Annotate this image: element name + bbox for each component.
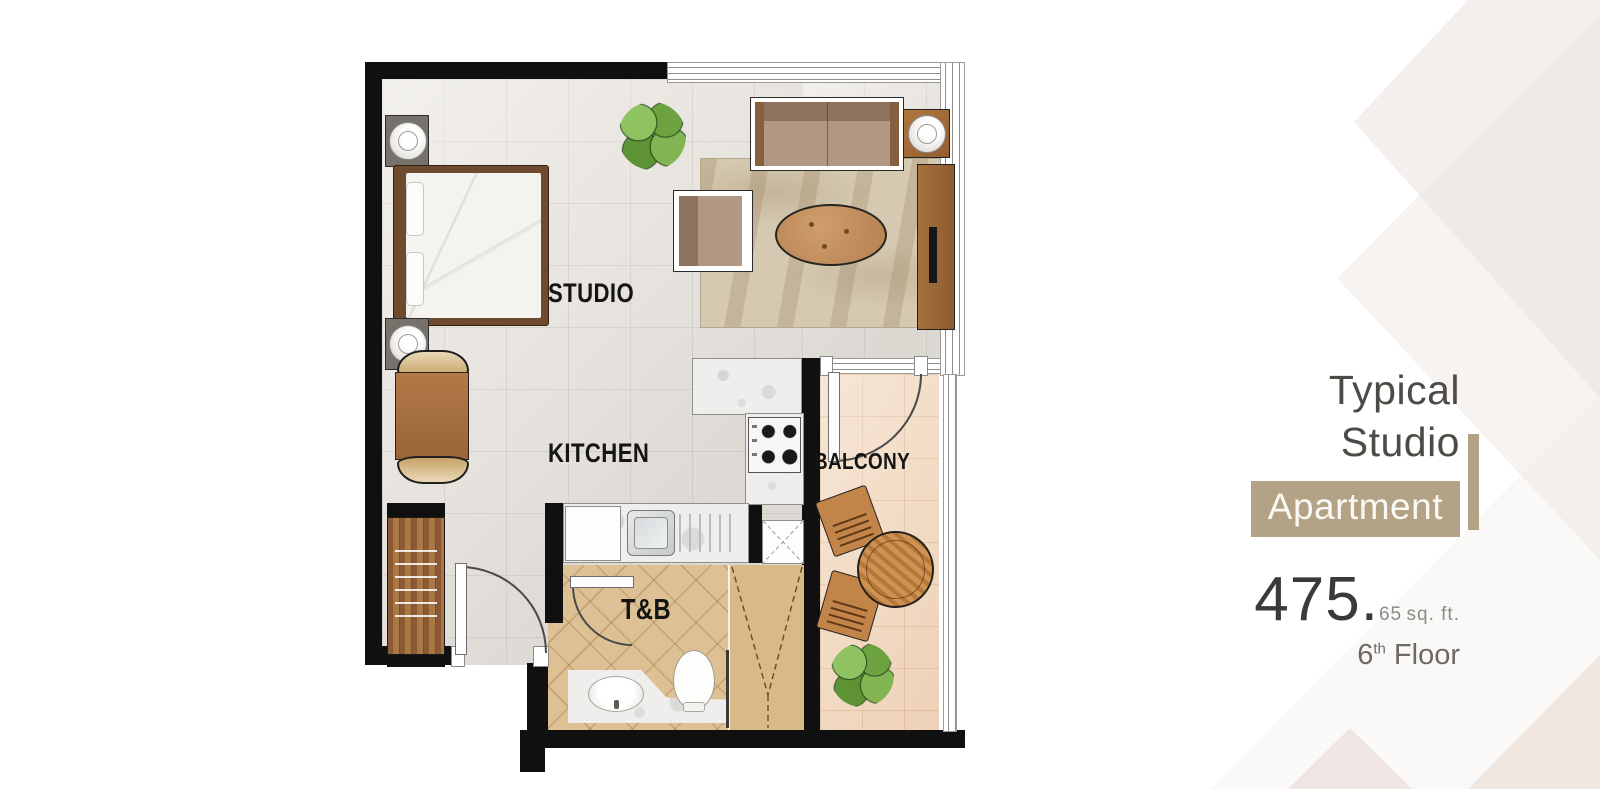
area-fraction: 65 <box>1379 604 1402 625</box>
balcony-table <box>857 531 934 608</box>
armchair <box>673 190 753 272</box>
panel-title-line2: Studio <box>1100 416 1460 468</box>
shower-partition <box>726 650 729 728</box>
fridge <box>565 506 621 561</box>
area-value: 475. <box>1254 565 1379 634</box>
wall-kitchen-balcony <box>802 358 820 730</box>
balcony-door-jamb <box>914 356 928 376</box>
floor-text: 6th Floor <box>1100 639 1460 672</box>
accent-bar <box>1468 434 1479 530</box>
floor-plan: STUDIO KITCHEN BALCONY T&B <box>365 62 965 774</box>
room-label-tnb: T&B <box>621 594 671 627</box>
wall-bathroom-left <box>527 663 548 730</box>
floor-suffix: th <box>1373 640 1386 657</box>
floor-word: Floor <box>1394 639 1460 671</box>
sofa-armrest <box>890 102 899 166</box>
panel-title-line1: Typical <box>1100 364 1460 416</box>
wall-wardrobe-cap-top <box>387 503 445 517</box>
mattress <box>406 173 541 318</box>
sofa-armrest <box>755 102 764 166</box>
storage-cabinet <box>762 520 804 564</box>
area-unit: sq. ft. <box>1407 604 1460 625</box>
area-text: 475.65 sq. ft. <box>1100 564 1460 635</box>
dining-table <box>395 372 469 460</box>
wall-left <box>365 62 382 663</box>
wall-top <box>365 62 667 79</box>
floor-number: 6 <box>1357 639 1373 671</box>
sofa-cushions <box>755 102 899 166</box>
armchair-cushion <box>679 196 742 266</box>
room-label-kitchen: KITCHEN <box>548 438 649 469</box>
sink-drainer <box>679 514 737 552</box>
wall-counter-divider <box>747 503 762 562</box>
stove-icon <box>748 417 801 473</box>
wall-bottom-stub <box>520 748 545 772</box>
side-table <box>903 109 950 158</box>
window-top <box>667 62 965 83</box>
entry-door-leaf <box>455 563 467 655</box>
dining-chair-bottom <box>397 456 469 484</box>
wall-bottom <box>520 730 965 748</box>
bed <box>393 165 549 326</box>
wardrobe <box>387 517 445 655</box>
info-panel: Typical Studio Apartment 475.65 sq. ft. … <box>1100 364 1460 672</box>
table-lamp-icon <box>908 115 946 153</box>
potted-plant-icon <box>830 643 894 707</box>
pillow <box>406 252 424 306</box>
room-label-studio: STUDIO <box>548 278 634 309</box>
pillow <box>406 182 424 236</box>
kitchen-sink-icon <box>627 510 675 556</box>
coffee-table <box>775 204 887 266</box>
bathroom-door-leaf <box>570 576 634 588</box>
shower <box>728 565 804 730</box>
potted-plant-icon <box>618 102 686 170</box>
tv-console <box>917 164 955 330</box>
room-label-balcony: BALCONY <box>814 448 910 475</box>
kitchen-counter-top <box>692 358 802 415</box>
toilet-icon <box>673 650 715 709</box>
vanity-basin-icon <box>588 676 644 712</box>
nightstand-top <box>385 115 429 167</box>
apartment-badge: Apartment <box>1251 481 1460 537</box>
table-lamp-icon <box>389 122 427 160</box>
balcony-railing <box>943 374 957 732</box>
wall-entry-right <box>545 503 563 623</box>
wall-wardrobe-cap-bottom <box>387 653 445 667</box>
sofa <box>750 97 904 171</box>
